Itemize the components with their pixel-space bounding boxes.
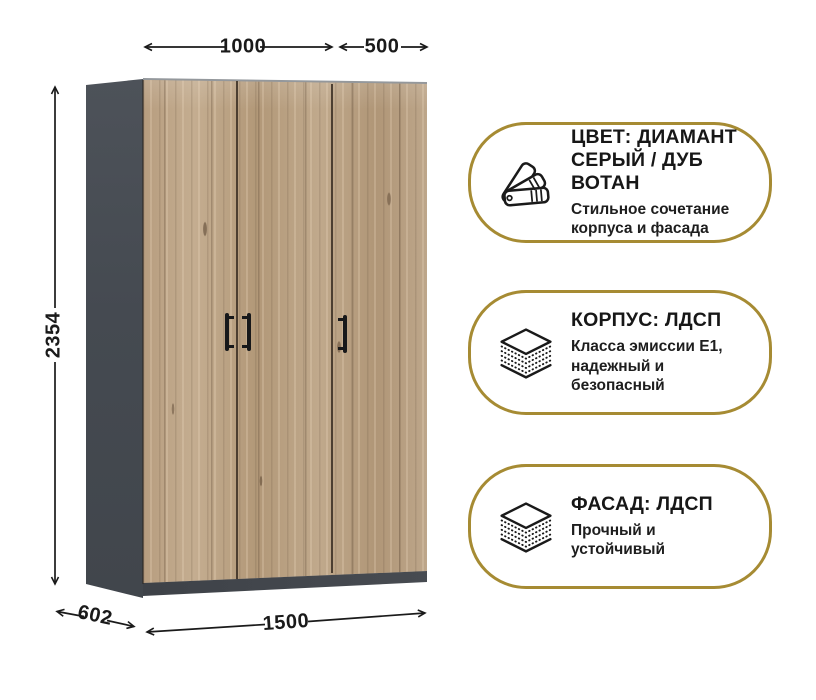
- badge-subtitle: Класса эмиссии Е1, надежный и безопасный: [571, 337, 751, 396]
- color-swatches-icon: [493, 152, 559, 214]
- badge-title: КОРПУС: ЛДСП: [571, 309, 751, 332]
- badge-title: ФАСАД: ЛДСП: [571, 493, 751, 516]
- layers-icon: [493, 323, 559, 383]
- badge-text: ФАСАД: ЛДСП Прочный и устойчивый: [571, 493, 751, 560]
- dim-label-width: 1500: [262, 610, 310, 636]
- badge-text: ЦВЕТ: ДИАМАНТ СЕРЫЙ / ДУБ ВОТАН Стильное…: [571, 126, 751, 238]
- badge-title: ЦВЕТ: ДИАМАНТ СЕРЫЙ / ДУБ ВОТАН: [571, 126, 751, 194]
- badge-text: КОРПУС: ЛДСП Класса эмиссии Е1, надежный…: [571, 309, 751, 395]
- badge-color: ЦВЕТ: ДИАМАНТ СЕРЫЙ / ДУБ ВОТАН Стильное…: [468, 122, 772, 243]
- badge-fasad: ФАСАД: ЛДСП Прочный и устойчивый: [468, 464, 772, 589]
- dim-label-top-width: 1000: [220, 36, 267, 59]
- dim-label-top-door: 500: [365, 36, 400, 59]
- badge-subtitle: Стильное сочетание корпуса и фасада: [571, 200, 751, 239]
- badge-subtitle: Прочный и устойчивый: [571, 521, 751, 560]
- badge-korpus: КОРПУС: ЛДСП Класса эмиссии Е1, надежный…: [468, 290, 772, 415]
- product-infographic: 1000 500 2354 1500 602 ЦВЕТ: ДИАМАНТ СЕР…: [0, 0, 816, 700]
- dim-label-height: 2354: [43, 312, 66, 359]
- layers-icon: [493, 497, 559, 557]
